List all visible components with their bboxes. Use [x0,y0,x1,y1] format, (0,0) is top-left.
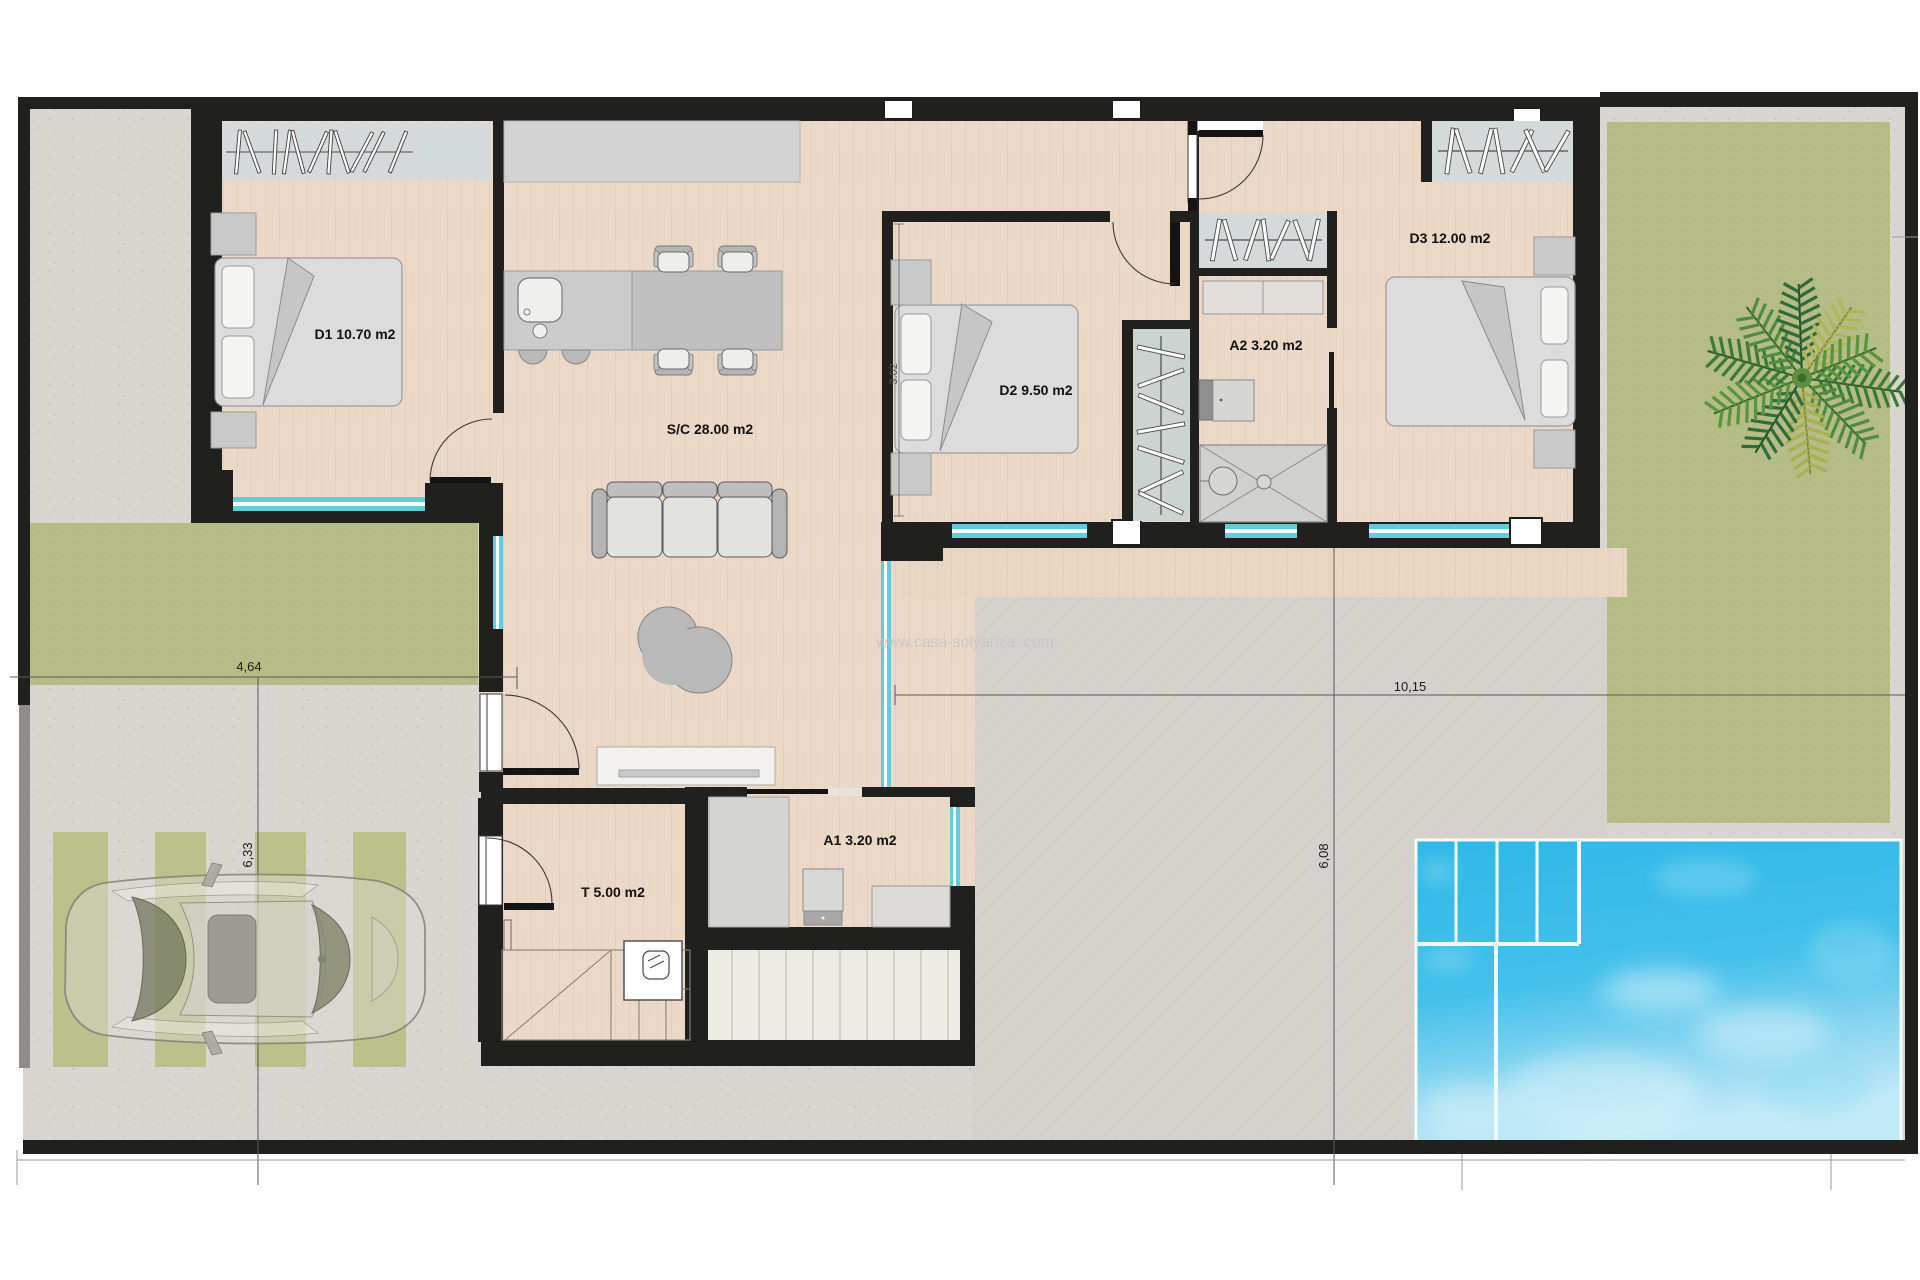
svg-text:www.casa-solyanza .com: www.casa-solyanza .com [875,634,1054,651]
svg-text:T 5.00 m2: T 5.00 m2 [581,884,645,900]
svg-text:6,33: 6,33 [240,842,255,867]
svg-text:S/C 28.00 m2: S/C 28.00 m2 [667,421,754,437]
svg-text:D2 9.50 m2: D2 9.50 m2 [999,382,1072,398]
svg-text:A1 3.20 m2: A1 3.20 m2 [823,832,896,848]
svg-text:4,64: 4,64 [236,659,261,674]
svg-text:A2 3.20 m2: A2 3.20 m2 [1229,337,1302,353]
svg-text:3.02: 3.02 [888,363,900,384]
svg-text:10,15: 10,15 [1394,679,1427,694]
svg-text:D1 10.70 m2: D1 10.70 m2 [315,326,396,342]
svg-text:6,08: 6,08 [1316,843,1331,868]
svg-text:D3 12.00 m2: D3 12.00 m2 [1410,230,1491,246]
